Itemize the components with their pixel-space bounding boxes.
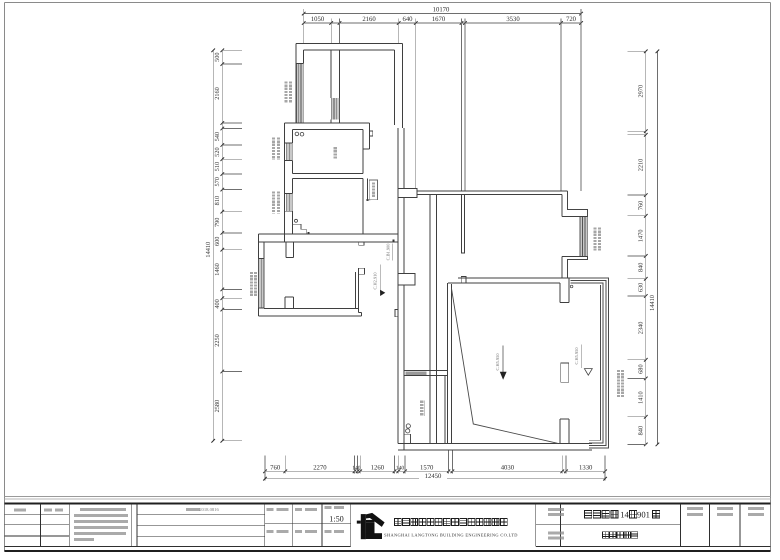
svg-text:140: 140 <box>396 466 405 472</box>
svg-text:2250: 2250 <box>214 334 221 347</box>
svg-text:790: 790 <box>214 218 221 227</box>
svg-text:2580: 2580 <box>214 400 221 413</box>
svg-text:1:50: 1:50 <box>329 514 344 523</box>
svg-text:C.H2.910: C.H2.910 <box>372 272 377 290</box>
svg-text:140: 140 <box>352 466 361 472</box>
svg-text:14: 14 <box>620 509 629 519</box>
svg-text:570: 570 <box>214 177 221 186</box>
svg-text:840: 840 <box>637 426 644 435</box>
svg-text:680: 680 <box>637 364 644 373</box>
svg-text:1460: 1460 <box>214 263 221 276</box>
svg-text:10170: 10170 <box>433 7 450 14</box>
svg-text:1050: 1050 <box>311 16 325 23</box>
svg-text:760: 760 <box>270 465 281 472</box>
svg-text:510: 510 <box>214 162 221 171</box>
svg-text:14410: 14410 <box>649 295 656 311</box>
svg-text:720: 720 <box>566 16 577 23</box>
svg-text:1410: 1410 <box>637 391 644 404</box>
svg-text:2970: 2970 <box>637 85 644 98</box>
svg-text:760: 760 <box>637 201 644 210</box>
svg-text:520: 520 <box>214 147 221 156</box>
svg-text:540: 540 <box>214 132 221 141</box>
svg-text:901: 901 <box>637 509 650 519</box>
svg-text:2160: 2160 <box>362 16 376 23</box>
svg-text:1570: 1570 <box>420 465 434 472</box>
svg-text:C.H5.950: C.H5.950 <box>495 353 500 371</box>
svg-text:2018.0816: 2018.0816 <box>199 507 219 512</box>
svg-text:840: 840 <box>637 263 644 272</box>
svg-text:SHANGHAI LANGTONG BUILDING ENG: SHANGHAI LANGTONG BUILDING ENGINEERING C… <box>384 533 518 538</box>
svg-text:C.H5.950: C.H5.950 <box>574 347 579 365</box>
svg-text:810: 810 <box>214 196 221 205</box>
svg-text:4030: 4030 <box>501 465 515 472</box>
svg-text:1260: 1260 <box>371 465 385 472</box>
svg-text:1330: 1330 <box>579 465 593 472</box>
svg-text:630: 630 <box>637 283 644 292</box>
svg-text:2210: 2210 <box>637 159 644 172</box>
svg-text:C.B1.900: C.B1.900 <box>385 243 390 261</box>
svg-text:500: 500 <box>214 52 221 61</box>
svg-text:12450: 12450 <box>425 473 442 480</box>
svg-text:1470: 1470 <box>637 230 644 243</box>
svg-text:14410: 14410 <box>205 242 212 258</box>
svg-text:2270: 2270 <box>313 465 327 472</box>
svg-text:2340: 2340 <box>637 322 644 335</box>
svg-text:640: 640 <box>402 16 413 23</box>
svg-text:2160: 2160 <box>214 87 221 100</box>
svg-text:1670: 1670 <box>432 16 446 23</box>
svg-text:400: 400 <box>214 299 221 308</box>
svg-text:3530: 3530 <box>506 16 520 23</box>
svg-text:600: 600 <box>214 237 221 246</box>
